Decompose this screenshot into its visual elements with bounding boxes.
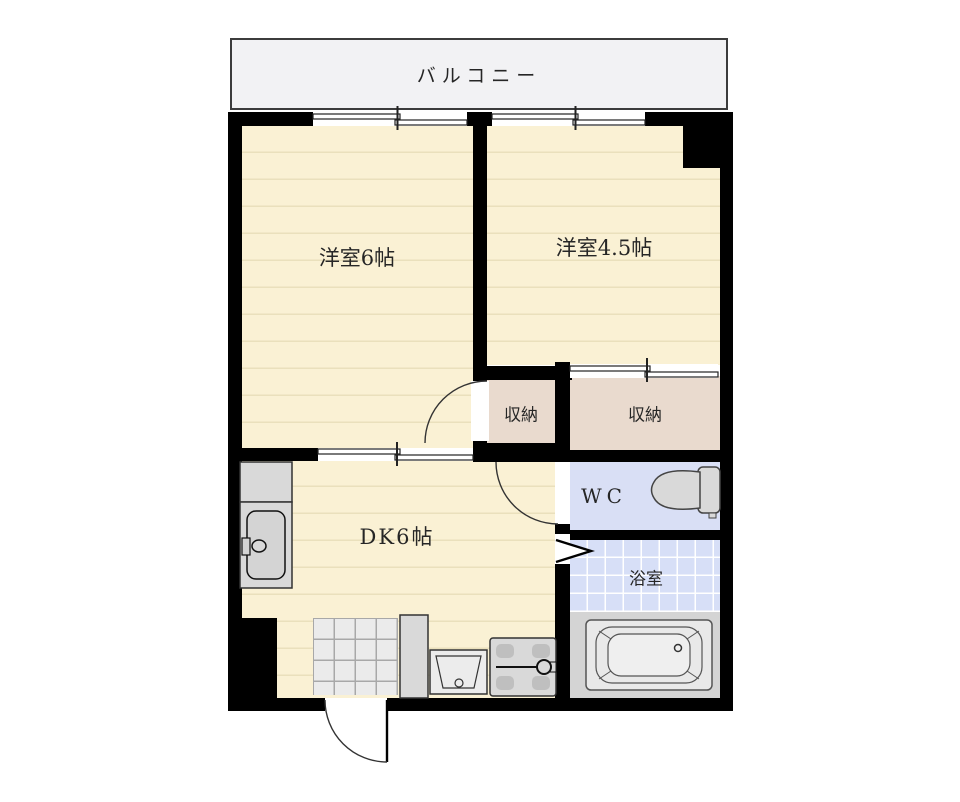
- dk-label: DK6帖: [360, 521, 435, 551]
- room-western45-label: 洋室4.5帖: [556, 232, 652, 262]
- hinged-door-swing-icon: [425, 381, 487, 443]
- storage-right-label: 収納: [628, 401, 662, 426]
- room-western6-label: 洋室6帖: [319, 242, 395, 272]
- kitchen-sink-icon: [240, 462, 292, 588]
- toilet-icon: [652, 467, 721, 518]
- sliding-window-icon: [492, 106, 645, 130]
- bathroom-label: 浴室: [629, 565, 663, 590]
- washing-machine-pan-icon: [490, 638, 556, 696]
- hinged-door-swing-icon: [496, 462, 558, 524]
- sliding-door-icon: [318, 442, 473, 466]
- bathtub-icon: [586, 620, 712, 690]
- washbasin-icon: [430, 650, 487, 694]
- entry-door-swing-icon: [325, 700, 387, 762]
- folding-door-icon: [556, 540, 591, 562]
- sliding-window-icon: [313, 106, 467, 130]
- floor-plan: バルコニー: [0, 0, 960, 802]
- shoe-cabinet-icon: [400, 615, 428, 698]
- plan-linework: [0, 0, 960, 802]
- sliding-door-icon: [570, 358, 718, 382]
- storage-left-label: 収納: [504, 401, 538, 426]
- wc-label: WC: [581, 484, 627, 508]
